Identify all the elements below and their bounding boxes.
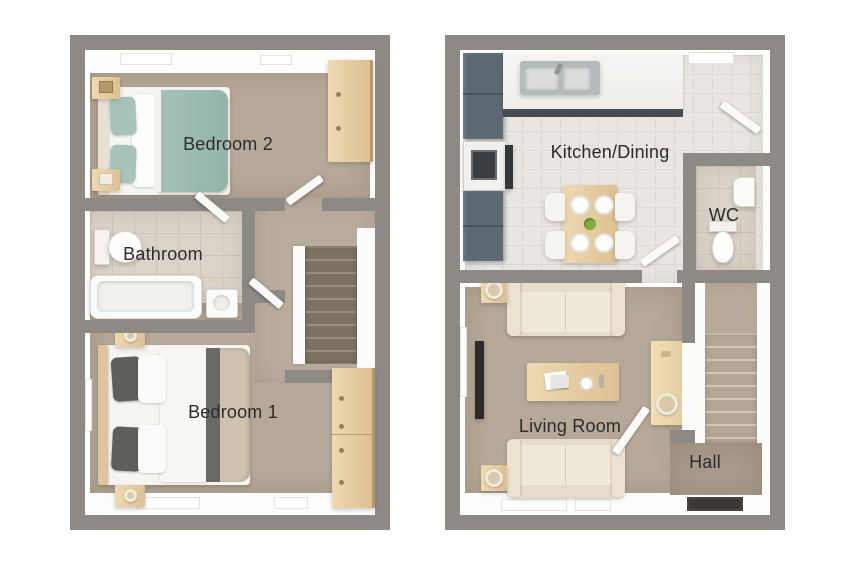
dining-chair3	[615, 193, 635, 221]
bed1-headboard	[98, 345, 108, 485]
wc-sink	[733, 177, 755, 207]
dining-chair2	[545, 231, 565, 259]
room-label-bedroom2: Bedroom 2	[158, 135, 298, 153]
living-sideboard	[651, 341, 683, 425]
wardrobe1-handle4	[339, 480, 344, 485]
bedroom2-window2-icon	[260, 55, 292, 65]
stairs-down-icon	[305, 246, 357, 364]
kitchen-sink	[520, 61, 600, 95]
bedroom1-nightstand2	[115, 485, 145, 507]
dining-chair4	[615, 231, 635, 259]
kitchen-oven	[463, 141, 507, 191]
plate-icon2	[594, 195, 614, 215]
front-doormat	[687, 497, 743, 511]
bathroom-bathtub	[90, 275, 202, 319]
plate-icon4	[594, 233, 614, 253]
wall-wc-north	[683, 153, 770, 166]
bed-pillow-teal	[109, 96, 137, 135]
bedroom1-window2-icon	[274, 497, 308, 509]
bedroom1-wardrobe	[332, 368, 375, 508]
stairs-banister	[293, 246, 305, 364]
living-tv	[475, 341, 484, 419]
wardrobe1-handle3	[339, 448, 344, 453]
bed1-pillow-white2	[138, 425, 166, 473]
magazine2-icon	[551, 375, 569, 388]
wall-bedroom2-south-left	[85, 198, 285, 211]
living-window-icon	[501, 499, 567, 511]
remote-icon	[599, 374, 604, 388]
stairs-west-wall	[695, 283, 705, 443]
living-sofa-top	[507, 278, 625, 336]
wall-kitchen-south-right	[677, 270, 770, 283]
wall-wc-west	[683, 166, 696, 283]
bedroom1-window-icon	[136, 497, 200, 509]
stairs-up-icon	[705, 333, 757, 443]
bathtub-basin	[97, 281, 194, 312]
sideboard-lamp-icon	[656, 393, 678, 415]
wall-living-east	[682, 283, 695, 343]
living-corner-table-bottom	[481, 465, 507, 491]
kitchen-base-units	[463, 191, 503, 261]
room-label-wc: WC	[694, 206, 754, 224]
first-floor-plan: Bedroom 2 Bathroom Bedroom 1	[70, 35, 390, 530]
stairwell-east-wall	[357, 228, 375, 368]
bathroom-sink	[206, 289, 238, 318]
kitchen-counter-edge	[503, 109, 683, 117]
sink-basin-left	[525, 66, 559, 90]
room-label-hall: Hall	[677, 453, 733, 471]
wall-bedroom2-south-right	[322, 198, 375, 211]
wardrobe1-handle	[339, 396, 344, 401]
wall-kitchen-south-left	[460, 270, 642, 283]
sofa-arm-left	[507, 278, 520, 336]
kitchen-tall-units	[463, 53, 503, 139]
dining-chair	[545, 193, 565, 221]
wardrobe-handle2	[336, 126, 341, 131]
living-sofa-bottom	[507, 439, 625, 497]
wall-hall-north	[670, 430, 695, 443]
room-label-bathroom: Bathroom	[103, 245, 223, 263]
bed1-pillow-white	[138, 355, 166, 403]
room-label-bedroom1: Bedroom 1	[163, 403, 303, 421]
plant-icon	[584, 218, 596, 230]
sofa-seam	[565, 292, 566, 332]
plate-icon	[570, 195, 590, 215]
wall-living-east-face	[682, 343, 695, 430]
wardrobe1-divider	[332, 434, 372, 435]
bedroom2-nightstand	[92, 77, 120, 99]
wardrobe-handle	[336, 92, 341, 97]
wall-bathroom-south	[85, 320, 242, 333]
room-label-kitchen-dining: Kitchen/Dining	[530, 143, 690, 161]
sink-basin-right	[563, 66, 591, 90]
cup-icon	[579, 376, 594, 391]
sink-faucet-icon	[554, 63, 563, 76]
floorplan-canvas: Bedroom 2 Bathroom Bedroom 1	[0, 0, 850, 567]
oven-door	[471, 150, 497, 180]
wardrobe1-handle2	[339, 424, 344, 429]
living-coffee-table	[527, 363, 619, 401]
stairs-east-wall	[757, 283, 765, 443]
wc-toilet-bowl	[712, 231, 734, 263]
bedroom2-nightstand2	[92, 169, 120, 191]
plate-icon3	[570, 233, 590, 253]
living-window2-icon	[575, 499, 611, 511]
living-window-west-icon	[460, 327, 467, 397]
sofa-seat	[520, 292, 612, 332]
stairs-area	[695, 283, 765, 443]
bedroom2-window-icon	[120, 53, 172, 65]
sink-basin	[213, 295, 230, 311]
kitchen-window-icon	[688, 52, 734, 64]
nightstand-items	[100, 82, 112, 92]
nightstand-items2	[100, 174, 112, 184]
room-label-living-room: Living Room	[500, 417, 640, 435]
sofa-arm-right	[612, 278, 625, 336]
ground-floor-plan: Kitchen/Dining WC Living Room Hall	[445, 35, 785, 530]
bedroom1-window-west-icon	[85, 379, 92, 431]
sideboard-deco	[661, 351, 671, 357]
bedroom2-wardrobe	[328, 60, 373, 162]
wall-bathroom-east	[242, 198, 255, 333]
kitchen-hob	[505, 145, 513, 189]
